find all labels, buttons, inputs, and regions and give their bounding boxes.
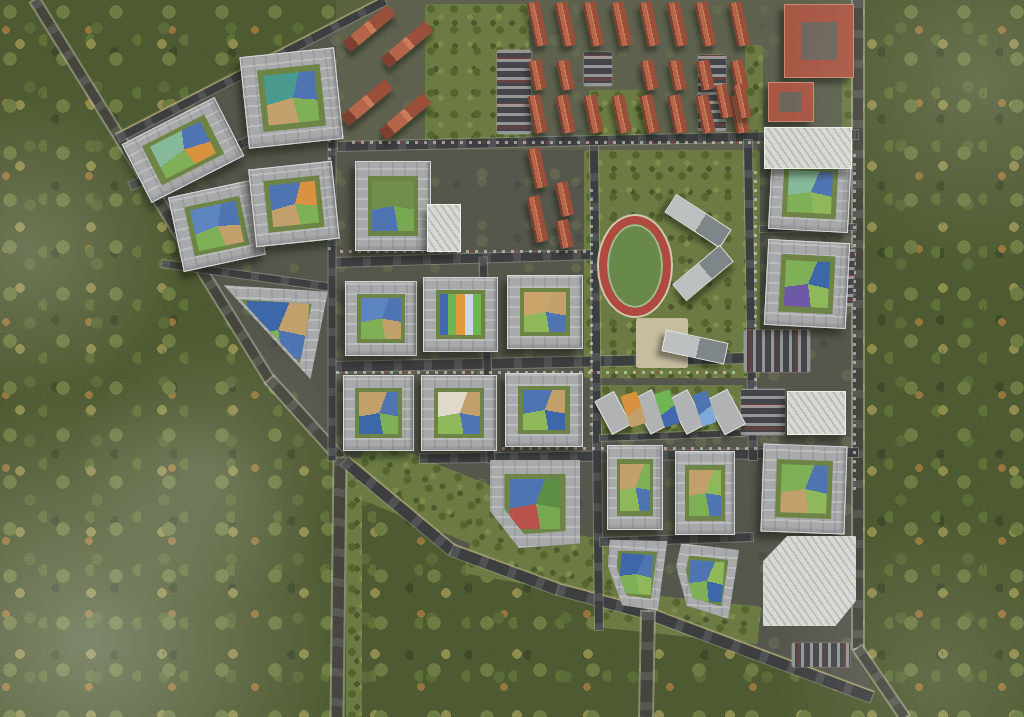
parking-lot <box>744 330 810 372</box>
playground <box>359 392 398 433</box>
white-building-W3 <box>763 536 856 626</box>
courtyard <box>778 254 835 314</box>
brick-courtyard-building <box>768 82 814 122</box>
playground <box>687 560 724 602</box>
playground <box>780 464 827 514</box>
courtyard <box>434 388 484 438</box>
parking-lot <box>741 389 785 435</box>
courtyard <box>264 175 325 232</box>
brick-building-courtyard <box>801 22 836 59</box>
playground <box>524 292 565 332</box>
residential-block-UL4 <box>248 161 340 247</box>
residential-block-Q2 <box>764 239 850 329</box>
road-segment <box>640 612 654 717</box>
residential-block-S3 <box>507 275 583 349</box>
parked-cars-strip <box>853 150 856 490</box>
courtyard <box>683 555 729 607</box>
residential-block-S1 <box>345 281 417 356</box>
courtyard <box>504 474 565 534</box>
courtyard <box>782 165 838 219</box>
residential-block-Q3 <box>760 444 847 535</box>
playground <box>150 121 217 179</box>
white-building-W4 <box>427 204 461 252</box>
playground <box>620 464 650 510</box>
white-building-W1 <box>764 127 852 169</box>
playground <box>438 392 479 433</box>
courtyard <box>615 549 658 599</box>
residential-block-RC1 <box>607 445 663 530</box>
residential-block-S2 <box>423 277 498 352</box>
residential-block-S0 <box>355 161 431 251</box>
playground <box>523 390 565 430</box>
running-track <box>599 216 671 316</box>
playground <box>372 181 413 230</box>
parking-lot <box>497 50 531 134</box>
playground <box>618 553 653 594</box>
playground <box>361 298 400 339</box>
parking-lot <box>792 643 850 667</box>
residential-block-UL1 <box>239 47 343 148</box>
courtyard <box>436 290 486 340</box>
parked-cars-strip <box>590 185 593 435</box>
courtyard <box>355 388 402 438</box>
residential-block-S6 <box>505 373 583 447</box>
playground <box>263 70 320 125</box>
lawn-area <box>346 458 362 717</box>
residential-block-S4 <box>343 375 414 451</box>
courtyard <box>357 294 405 344</box>
courtyard <box>685 465 724 521</box>
playground <box>190 201 243 251</box>
courtyard <box>257 64 326 131</box>
masterplan-aerial-view <box>0 0 1024 717</box>
playground <box>787 170 833 215</box>
courtyard <box>617 459 654 515</box>
brick-courtyard-building <box>784 4 854 78</box>
residential-block-RC2 <box>675 451 735 535</box>
playground <box>783 259 830 308</box>
courtyard <box>518 386 570 435</box>
playground <box>269 181 319 228</box>
brick-building-courtyard <box>780 92 803 112</box>
courtyard <box>775 459 833 519</box>
playground <box>440 294 481 335</box>
parking-lot <box>584 52 612 86</box>
playground <box>689 470 721 516</box>
residential-block-S5 <box>421 375 497 451</box>
white-building-W2 <box>787 391 846 435</box>
courtyard <box>520 288 570 337</box>
playground <box>510 479 560 528</box>
courtyard <box>368 176 418 236</box>
courtyard <box>184 196 249 257</box>
